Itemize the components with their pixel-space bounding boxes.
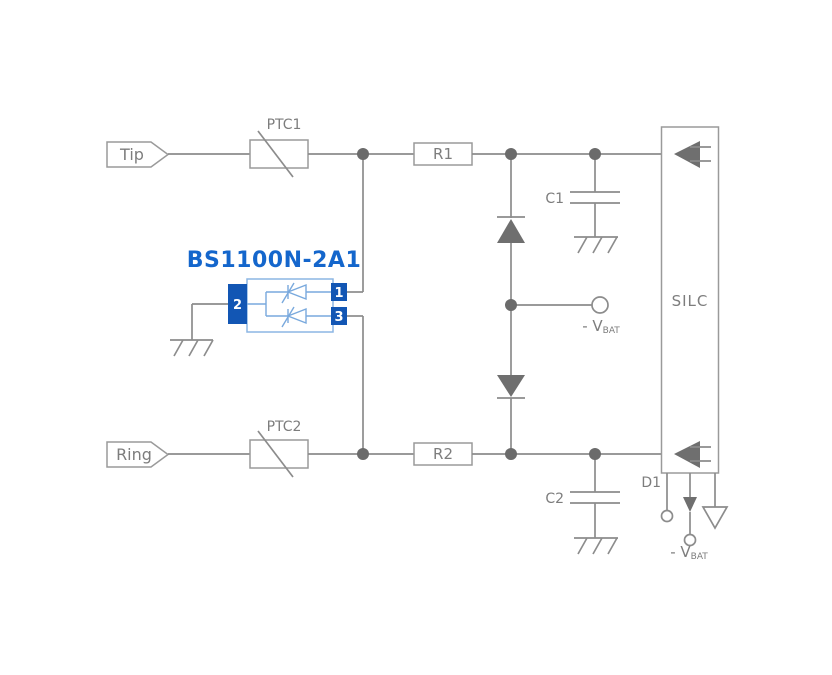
ptc2-body [250,440,308,468]
ground-icon-c1 [574,237,618,253]
device-pin-3: 3 [331,307,347,325]
ptc1-label: PTC1 [267,117,302,133]
junction-dot [505,448,517,460]
d1-label: D1 [641,475,661,491]
diode-up-icon [497,217,525,243]
device-body [247,279,333,332]
device-part-number: BS1100N-2A1 [187,248,362,273]
ptc1-body [250,140,308,168]
r1-label: R1 [433,145,453,163]
junction-dot [357,448,369,460]
junction-dots [357,148,601,460]
ptc1-thermistor: PTC1 [250,117,308,177]
junction-dot [589,448,601,460]
tip-terminal: Tip [107,142,168,167]
r1-resistor: R1 [414,143,472,165]
junction-dot [505,299,517,311]
c1-capacitor: C1 [545,154,620,253]
ptc2-thermistor: PTC2 [250,419,308,477]
device-pin-2: 2 [228,284,247,324]
vbat-bottom-terminal: - VBAT [670,473,708,562]
diode-down-icon [497,375,525,398]
d1-terminal-circle [662,511,673,522]
earth-ground-icon [703,507,727,528]
d1-terminal: D1 [641,473,672,522]
ground-icon-c2 [574,538,618,554]
vbat-tap: - VBAT [511,297,620,336]
junction-dot [505,148,517,160]
vbat-label-bottom: - VBAT [670,543,708,562]
ring-label: Ring [116,445,152,464]
silc-block: SILC [662,127,719,473]
vbat-terminal-circle [592,297,608,313]
junction-dot [589,148,601,160]
r2-label: R2 [433,445,453,463]
protector-device: BS1100N-2A1 2 [170,248,363,356]
svg-text:2: 2 [233,298,242,313]
earth-terminal [703,473,727,528]
vbat-label-mid: - VBAT [582,317,620,336]
tip-label: Tip [119,145,144,164]
ptc2-label: PTC2 [267,419,302,435]
c2-capacitor: C2 [545,454,620,554]
svg-text:1: 1 [334,286,343,301]
svg-text:3: 3 [334,310,343,325]
silc-label: SILC [672,292,709,310]
ground-icon-pin2 [170,340,213,356]
device-pin-1: 1 [331,283,347,301]
c1-label: C1 [545,191,564,207]
ring-terminal: Ring [107,442,168,467]
junction-dot [357,148,369,160]
r2-resistor: R2 [414,443,472,465]
c2-label: C2 [545,491,564,507]
schematic-canvas: Tip PTC1 R1 Ring PTC2 R2 BS1100N-2A1 [0,0,832,675]
arrow-down-icon [683,497,697,512]
